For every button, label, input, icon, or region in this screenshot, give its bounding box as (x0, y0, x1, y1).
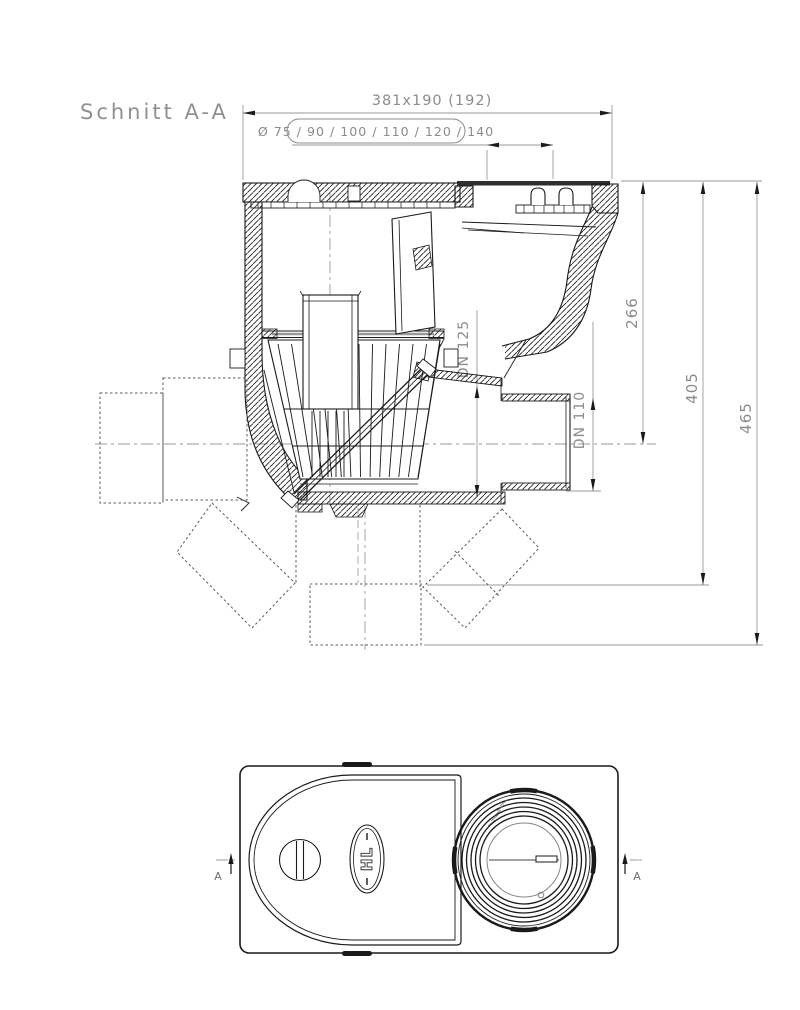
dn110-label: DN 110 (572, 391, 588, 449)
plan-view (240, 762, 618, 956)
cut-marker-a-left: A (214, 870, 222, 883)
brand-logo-text: HL (358, 847, 376, 871)
dimension-width-text: 381x190 (192) (372, 93, 493, 109)
dimension-405-text: 405 (683, 372, 701, 404)
dimension-465-text: 465 (737, 402, 755, 434)
clamping-rings (454, 790, 594, 930)
cut-marker-a-right: A (633, 870, 641, 883)
diameter-callout-text: Ø 75 / 90 / 100 / 110 / 120 / 140 (258, 124, 494, 139)
section-title: Schnitt A-A (80, 100, 229, 124)
top-grate (243, 180, 460, 208)
section-view-part (230, 180, 618, 517)
dimension-266-text: 266 (623, 297, 641, 329)
backflow-flap-upper (392, 212, 435, 334)
bottom-tab (342, 951, 372, 956)
top-tab (342, 762, 372, 767)
drawing-svg: Schnitt A-A (0, 0, 800, 1010)
technical-drawing-page: Schnitt A-A (0, 0, 800, 1010)
outlet-spigot (502, 394, 570, 490)
